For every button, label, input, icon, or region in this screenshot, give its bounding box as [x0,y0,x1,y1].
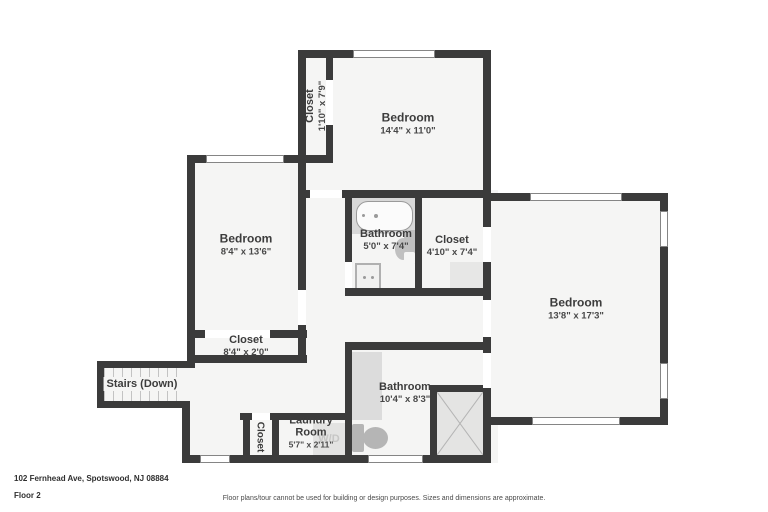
wall [243,413,250,463]
wall [342,190,490,198]
wall [97,401,190,408]
room-label-right-bedroom: Bedroom 13'8" x 17'3" [548,296,604,321]
room-label-top-bedroom: Bedroom 14'4" x 11'0" [380,111,435,136]
wall [483,50,491,227]
door-opening [252,413,270,420]
door-opening [310,190,342,198]
wall [187,155,195,368]
window-marker [530,193,622,201]
room-label-stairs: Stairs (Down) [104,377,181,391]
window-marker [353,50,435,58]
property-address: 102 Fernhead Ave, Spotswood, NJ 08884 [14,474,169,483]
window-marker [368,455,423,463]
window-marker [206,155,284,163]
wall [483,262,491,300]
wall [326,58,333,80]
wall [430,385,437,463]
wall [345,198,352,262]
shower-icon [437,392,483,455]
door-opening [298,290,306,325]
wall [430,385,491,392]
wall [483,337,491,353]
wall [415,198,422,296]
room-label-bottom-closet: Closet [255,422,266,453]
room-label-top-closet: Closet 1'10" x 7'9" [304,81,328,132]
door-opening [483,227,491,262]
sink-icon [355,263,381,291]
window-marker [660,363,668,399]
dresser-icon [450,262,483,289]
window-marker [200,455,230,463]
wall [182,405,190,463]
disclaimer-text: Floor plans/tour cannot be used for buil… [0,495,768,502]
room-label-mid-bathroom: Bathroom 5'0" x 7'4" [360,228,412,252]
toilet-icon [352,424,392,454]
wall [97,361,190,368]
window-marker [660,211,668,247]
wall [483,388,491,463]
floor-plan: W/D Closet [0,0,768,512]
door-opening [483,353,491,388]
room-label-bottom-bathroom: Bathroom 10'4" x 8'3" [379,381,431,405]
door-opening [483,300,491,337]
wall [298,325,306,363]
room-label-laundry: Laundry Room 5'7" x 2'11" [275,414,347,449]
window-marker [532,417,620,425]
room-label-mid-closet: Closet 4'10" x 7'4" [427,234,478,258]
vanity-counter [352,352,382,420]
door-opening [345,262,352,288]
room-label-hall-closet: Closet 8'4" x 2'0" [223,334,268,358]
wall [345,342,491,350]
room-label-left-bedroom: Bedroom 8'4" x 13'6" [220,232,273,257]
